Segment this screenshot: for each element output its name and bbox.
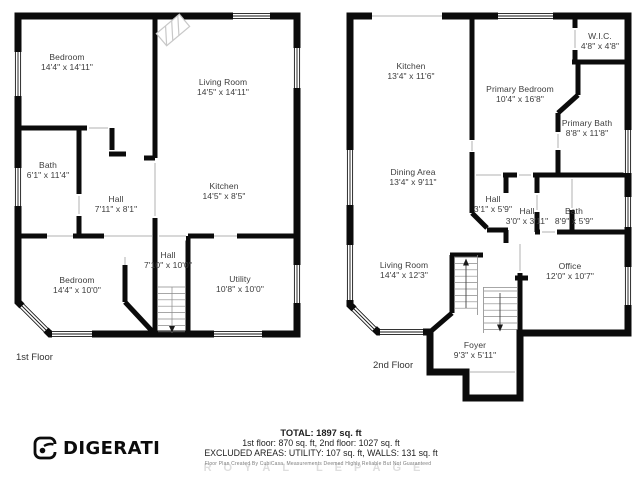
watermark-note-text: Floor Plan Created By CubiCasa. Measurem… [205,461,431,467]
floor-plan-canvas [0,0,640,480]
floor-areas-text: 1st floor: 870 sq. ft, 2nd floor: 1027 s… [204,438,437,448]
second-floor-outline [350,16,628,398]
total-area-text: TOTAL: 1897 sq. ft [204,428,437,438]
logo-text: DIGERATI [63,438,160,459]
floorplan-page: 1st FloorBedroom14'4" x 14'11"Living Roo… [0,0,640,480]
digerati-logo-icon [33,436,57,460]
watermark: ROYAL LEPAGE Floor Plan Created By CubiC… [158,458,478,472]
area-summary: TOTAL: 1897 sq. ft 1st floor: 870 sq. ft… [204,428,437,458]
digerati-logo: DIGERATI [33,436,160,460]
excluded-areas-text: EXCLUDED AREAS: UTILITY: 107 sq. ft, WAL… [204,448,437,458]
